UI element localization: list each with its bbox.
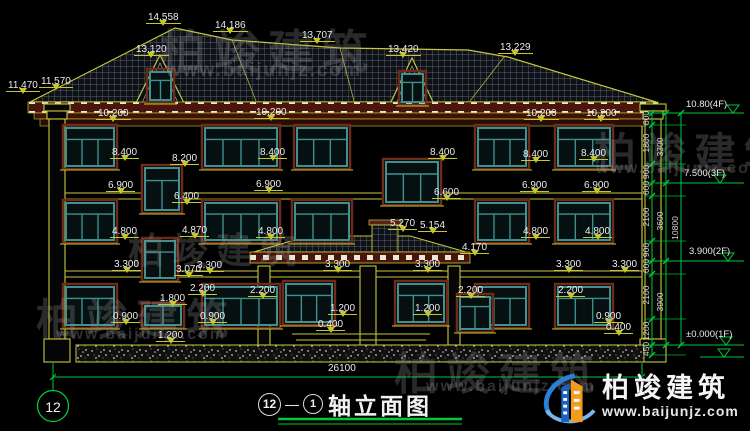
dimension-label: 6.900 <box>254 179 283 191</box>
dimension-label: 10.200 <box>584 108 619 120</box>
brand-logo-name: 柏竣建筑 <box>602 373 739 403</box>
dimension-label: 13.229 <box>498 42 533 54</box>
dimension-label: 4.800 <box>110 226 139 238</box>
level-label: 3.900(2F) <box>689 246 730 257</box>
level-label: 7.500(3F) <box>684 168 725 179</box>
dimension-label: 5.270 <box>388 218 417 230</box>
dimension-label: 0.400 <box>316 319 345 331</box>
dimension-label: 4.870 <box>180 225 209 237</box>
dimension-label: 4.800 <box>256 226 285 238</box>
dimension-label: 14.186 <box>213 20 248 32</box>
dimension-label: 13.120 <box>134 44 169 56</box>
dimension-label: 2.200 <box>456 285 485 297</box>
dimension-label: 0.400 <box>604 322 633 334</box>
dimension-label: 4.170 <box>460 242 489 254</box>
watermark-text: www.baijunjz.com <box>56 326 226 344</box>
title-axis-end-bubble: 1 <box>303 394 323 414</box>
vertical-dimension-label: 3300 <box>655 130 665 164</box>
vertical-dimension-label: 2100 <box>641 278 651 312</box>
dimension-label: 13.420 <box>386 44 421 56</box>
dimension-label: 1.200 <box>156 330 185 342</box>
window <box>472 125 532 170</box>
level-label: 10.80(4F) <box>686 99 727 110</box>
dimension-label: 2.200 <box>248 285 277 297</box>
window <box>454 294 496 333</box>
dimension-label: 10.200 <box>96 108 131 120</box>
dimension-label: 8.400 <box>110 147 139 159</box>
dimension-label: 0.900 <box>111 311 140 323</box>
dimension-label: 11.470 <box>6 80 40 92</box>
drawing-title-text: 轴立面图 <box>328 387 432 421</box>
level-label: ±0.000(1F) <box>686 329 732 340</box>
watermark-text: www.baijunjz.com <box>596 160 750 178</box>
watermark-text: www.baijunjz.com <box>166 60 362 82</box>
dimension-label: 6.900 <box>106 180 135 192</box>
dimension-label: 3.300 <box>610 259 639 271</box>
dimension-label: 6.900 <box>520 180 549 192</box>
window <box>291 125 353 170</box>
dimension-label: 2.200 <box>188 283 217 295</box>
dimension-label: 4.800 <box>583 226 612 238</box>
dimension-label: 10.200 <box>254 107 289 119</box>
dimension-label: 2.200 <box>556 285 585 297</box>
dimension-label: 3.300 <box>112 259 141 271</box>
dimension-label: 6.600 <box>432 187 461 199</box>
dimension-label: 3.070 <box>174 264 203 276</box>
dimension-label: 3.300 <box>323 259 352 271</box>
window <box>139 165 185 214</box>
dimension-label: 4.800 <box>521 226 550 238</box>
dimension-label: 6.900 <box>582 180 611 192</box>
brand-logo-url: www.baijunjz.com <box>602 403 739 419</box>
brand-logo-icon <box>540 362 598 430</box>
dimension-label: 6.400 <box>172 191 201 203</box>
dimension-label: 1.200 <box>413 303 442 315</box>
vertical-dimension-label: 2100 <box>641 200 651 234</box>
axis-bubble-label: 12 <box>41 399 65 415</box>
dimension-label: 8.400 <box>258 147 287 159</box>
title-dash: — <box>285 396 299 412</box>
dimension-label: 11.570 <box>39 76 73 88</box>
dimension-label: 1.200 <box>328 303 357 315</box>
dimension-label: 8.200 <box>170 153 199 165</box>
title-axis-start-bubble: 12 <box>258 393 281 416</box>
dimension-label: 14.558 <box>146 12 181 24</box>
dimension-label: 10.200 <box>524 108 559 120</box>
dimension-label: 0.900 <box>198 311 227 323</box>
vertical-dimension-label: 3600 <box>655 204 665 238</box>
dimension-label: 5.154 <box>418 220 447 232</box>
dimension-label: 13.707 <box>300 30 335 42</box>
dimension-label: 8.400 <box>521 149 550 161</box>
dimension-label: 26100 <box>326 363 358 374</box>
dimension-label: 3.300 <box>413 259 442 271</box>
cad-canvas: 14.55814.18613.12013.70713.42013.22911.4… <box>0 0 750 431</box>
dimension-label: 8.400 <box>428 147 457 159</box>
dimension-label: 3.300 <box>554 259 583 271</box>
vertical-dimension-label: 10800 <box>670 211 680 245</box>
vertical-dimension-label: 3900 <box>655 285 665 319</box>
brand-logo: 柏竣建筑 www.baijunjz.com <box>540 360 750 431</box>
drawing-title: 12 — 1 轴立面图 <box>258 387 432 421</box>
dimension-label: 1.800 <box>158 293 187 305</box>
dimension-label: 8.400 <box>579 148 608 160</box>
